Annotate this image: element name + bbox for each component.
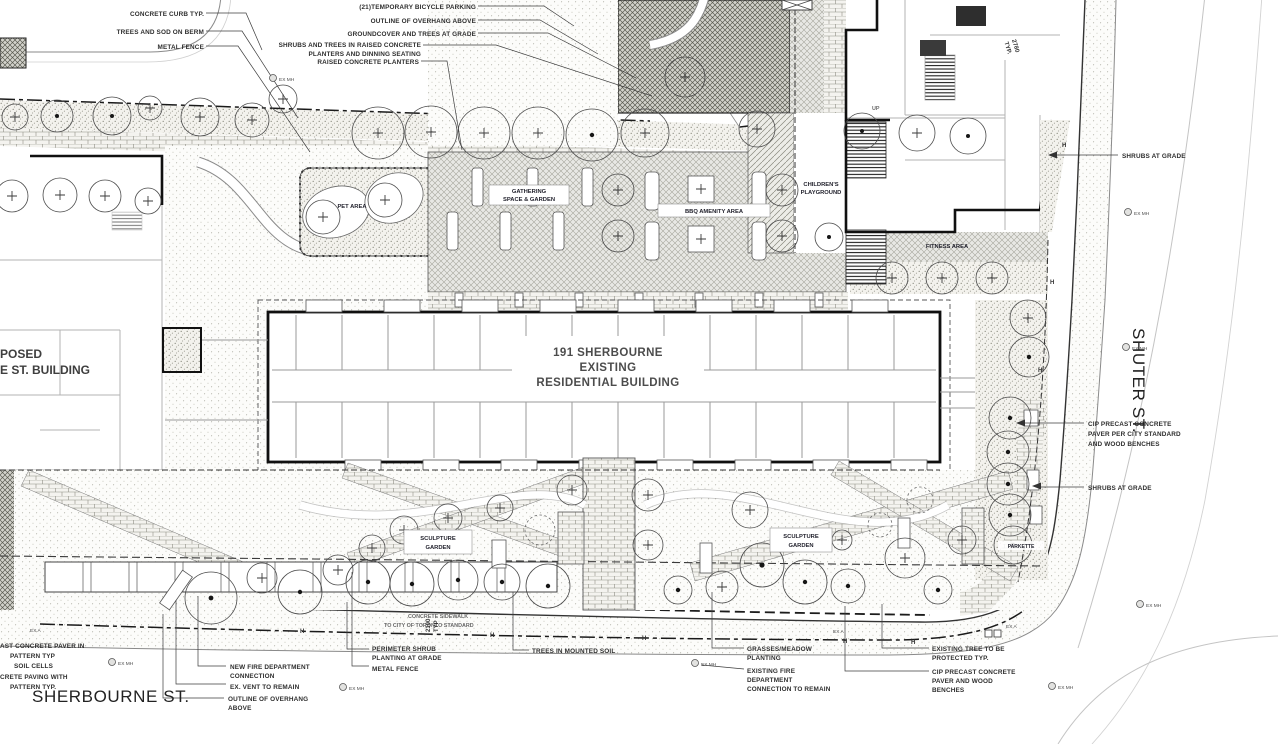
h-marker: H <box>642 636 646 642</box>
ann-exfire-3: CONNECTION TO REMAIN <box>747 686 831 693</box>
exa-label: EX A <box>833 629 844 635</box>
h-marker: H <box>300 629 304 635</box>
ann-exfire-2: DEPARTMENT <box>747 677 792 684</box>
h-marker: H <box>843 639 847 645</box>
ann-cip-right-3: AND WOOD BENCHES <box>1088 441 1160 448</box>
bbq-area-label: BBQ AMENITY AREA <box>685 209 744 215</box>
ann-groundcover: GROUNDCOVER AND TREES AT GRADE <box>347 31 476 38</box>
h-marker: H <box>1050 280 1054 286</box>
ann-perimeter-2: PLANTING AT GRADE <box>372 655 442 662</box>
main-building: 191 SHERBOURNE EXISTING RESIDENTIAL BUIL… <box>165 300 992 474</box>
up-label: UP <box>872 106 880 112</box>
ann-paver-1: AST CONCRETE PAVER IN <box>0 643 85 650</box>
ann-overhang-bottom-1: OUTLINE OF OVERHANG <box>228 696 308 703</box>
ann-shrubs-raised-2: PLANTERS AND DINNING SEATING <box>309 51 422 58</box>
ann-newfire-1: NEW FIRE DEPARTMENT <box>230 664 310 671</box>
exa-label: EX A <box>1006 624 1017 630</box>
site-plan-page: UP 191 SHERBOURNE EXISTING RESIDENTIAL B… <box>0 0 1280 744</box>
ann-overhang-bottom-2: ABOVE <box>228 705 252 712</box>
ann-cip-bottom-2: PAVER AND WOOD <box>932 678 993 685</box>
raised-planter-block <box>618 0 790 113</box>
h-marker: H <box>490 633 494 639</box>
ann-paving-1: CRETE PAVING WITH <box>0 674 68 681</box>
ann-extree-2: PROTECTED TYP. <box>932 655 989 662</box>
adjacent-building-label-1: POSED <box>0 347 42 361</box>
ann-bike-parking: (21)TEMPORARY BICYCLE PARKING <box>359 4 476 11</box>
ann-perimeter-1: PERIMETER SHRUB <box>372 646 436 653</box>
sculpture-garden-1b: GARDEN <box>425 545 450 551</box>
sherbourne-street-label: SHERBOURNE ST. <box>32 687 190 706</box>
ann-shrubs-grade-2: SHRUBS AT GRADE <box>1088 485 1152 492</box>
building-type: RESIDENTIAL BUILDING <box>536 377 679 389</box>
ann-grasses-2: PLANTING <box>747 655 781 662</box>
ann-trees-mounted: TREES IN MOUNTED SOIL <box>532 648 615 655</box>
exa-label: EX A <box>30 628 41 634</box>
sculpture-garden-2b: GARDEN <box>788 543 813 549</box>
h-marker: H <box>1038 368 1042 374</box>
playground-label-2: PLAYGROUND <box>801 190 842 196</box>
exmh-label: EX MH <box>1134 211 1150 217</box>
ann-concrete-curb: CONCRETE CURB TYP. <box>130 11 204 18</box>
ann-overhang-top: OUTLINE OF OVERHANG ABOVE <box>371 18 477 25</box>
building-name: 191 SHERBOURNE <box>553 347 663 359</box>
h-marker: H <box>1062 143 1066 149</box>
exmh-label: EX MH <box>701 662 717 668</box>
building-status: EXISTING <box>580 362 637 374</box>
gathering-label-2: SPACE & GARDEN <box>503 197 555 203</box>
central-walkway <box>583 458 635 610</box>
ann-grasses-1: GRASSES/MEADOW <box>747 646 813 653</box>
adjacent-building-label-2: E ST. BUILDING <box>0 363 90 377</box>
exmh-label: EX MH <box>1146 603 1162 609</box>
exmh-label: EX MH <box>349 686 365 692</box>
linear-bench <box>45 562 557 592</box>
ann-shrubs-grade-1: SHRUBS AT GRADE <box>1122 153 1186 160</box>
ann-exfire-1: EXISTING FIRE <box>747 668 796 675</box>
ann-metal-fence-top: METAL FENCE <box>157 44 204 51</box>
ann-trees-sod-berm: TREES AND SOD ON BERM <box>117 29 204 36</box>
exmh-label: EX MH <box>1132 346 1148 352</box>
ann-paver-2: PATTERN TYP <box>10 653 56 660</box>
planter-box <box>163 328 201 372</box>
h-marker: H <box>911 640 915 646</box>
exmh-label: EX MH <box>118 661 134 667</box>
exmh-label: EX MH <box>1058 685 1074 691</box>
ann-sidewalk-1: CONCRETE SIDEWALK <box>408 614 468 620</box>
site-plan-drawing: UP 191 SHERBOURNE EXISTING RESIDENTIAL B… <box>0 0 1280 744</box>
ann-newfire-2: CONNECTION <box>230 673 275 680</box>
parkette-label: PARKETTE <box>1008 544 1035 550</box>
shuter-street-label: SHUTER ST. <box>1129 328 1148 433</box>
ann-vent: EX. VENT TO REMAIN <box>230 684 300 691</box>
ann-cip-bottom-1: CIP PRECAST CONCRETE <box>932 669 1016 676</box>
playground-label-1: CHILDREN'S <box>803 182 838 188</box>
ann-soil-cells: SOIL CELLS <box>14 663 54 670</box>
pet-area-label: PET AREA <box>337 204 367 210</box>
ann-shrubs-raised-1: SHRUBS AND TREES IN RAISED CONCRETE <box>279 42 422 49</box>
exmh-label: EX MH <box>279 77 295 83</box>
sculpture-garden-1a: SCULPTURE <box>420 536 456 542</box>
ann-metal-fence-bottom: METAL FENCE <box>372 666 419 673</box>
gathering-label-1: GATHERING <box>512 189 547 195</box>
dim-2100: 2100 <box>426 618 432 632</box>
dim-2100-typ: TYP <box>434 620 440 632</box>
ann-extree-1: EXISTING TREE TO BE <box>932 646 1005 653</box>
ann-cip-bottom-3: BENCHES <box>932 687 965 694</box>
ann-raised-planters: RAISED CONCRETE PLANTERS <box>317 59 419 66</box>
sculpture-garden-2a: SCULPTURE <box>783 534 819 540</box>
fitness-area-label: FITNESS AREA <box>926 244 969 250</box>
